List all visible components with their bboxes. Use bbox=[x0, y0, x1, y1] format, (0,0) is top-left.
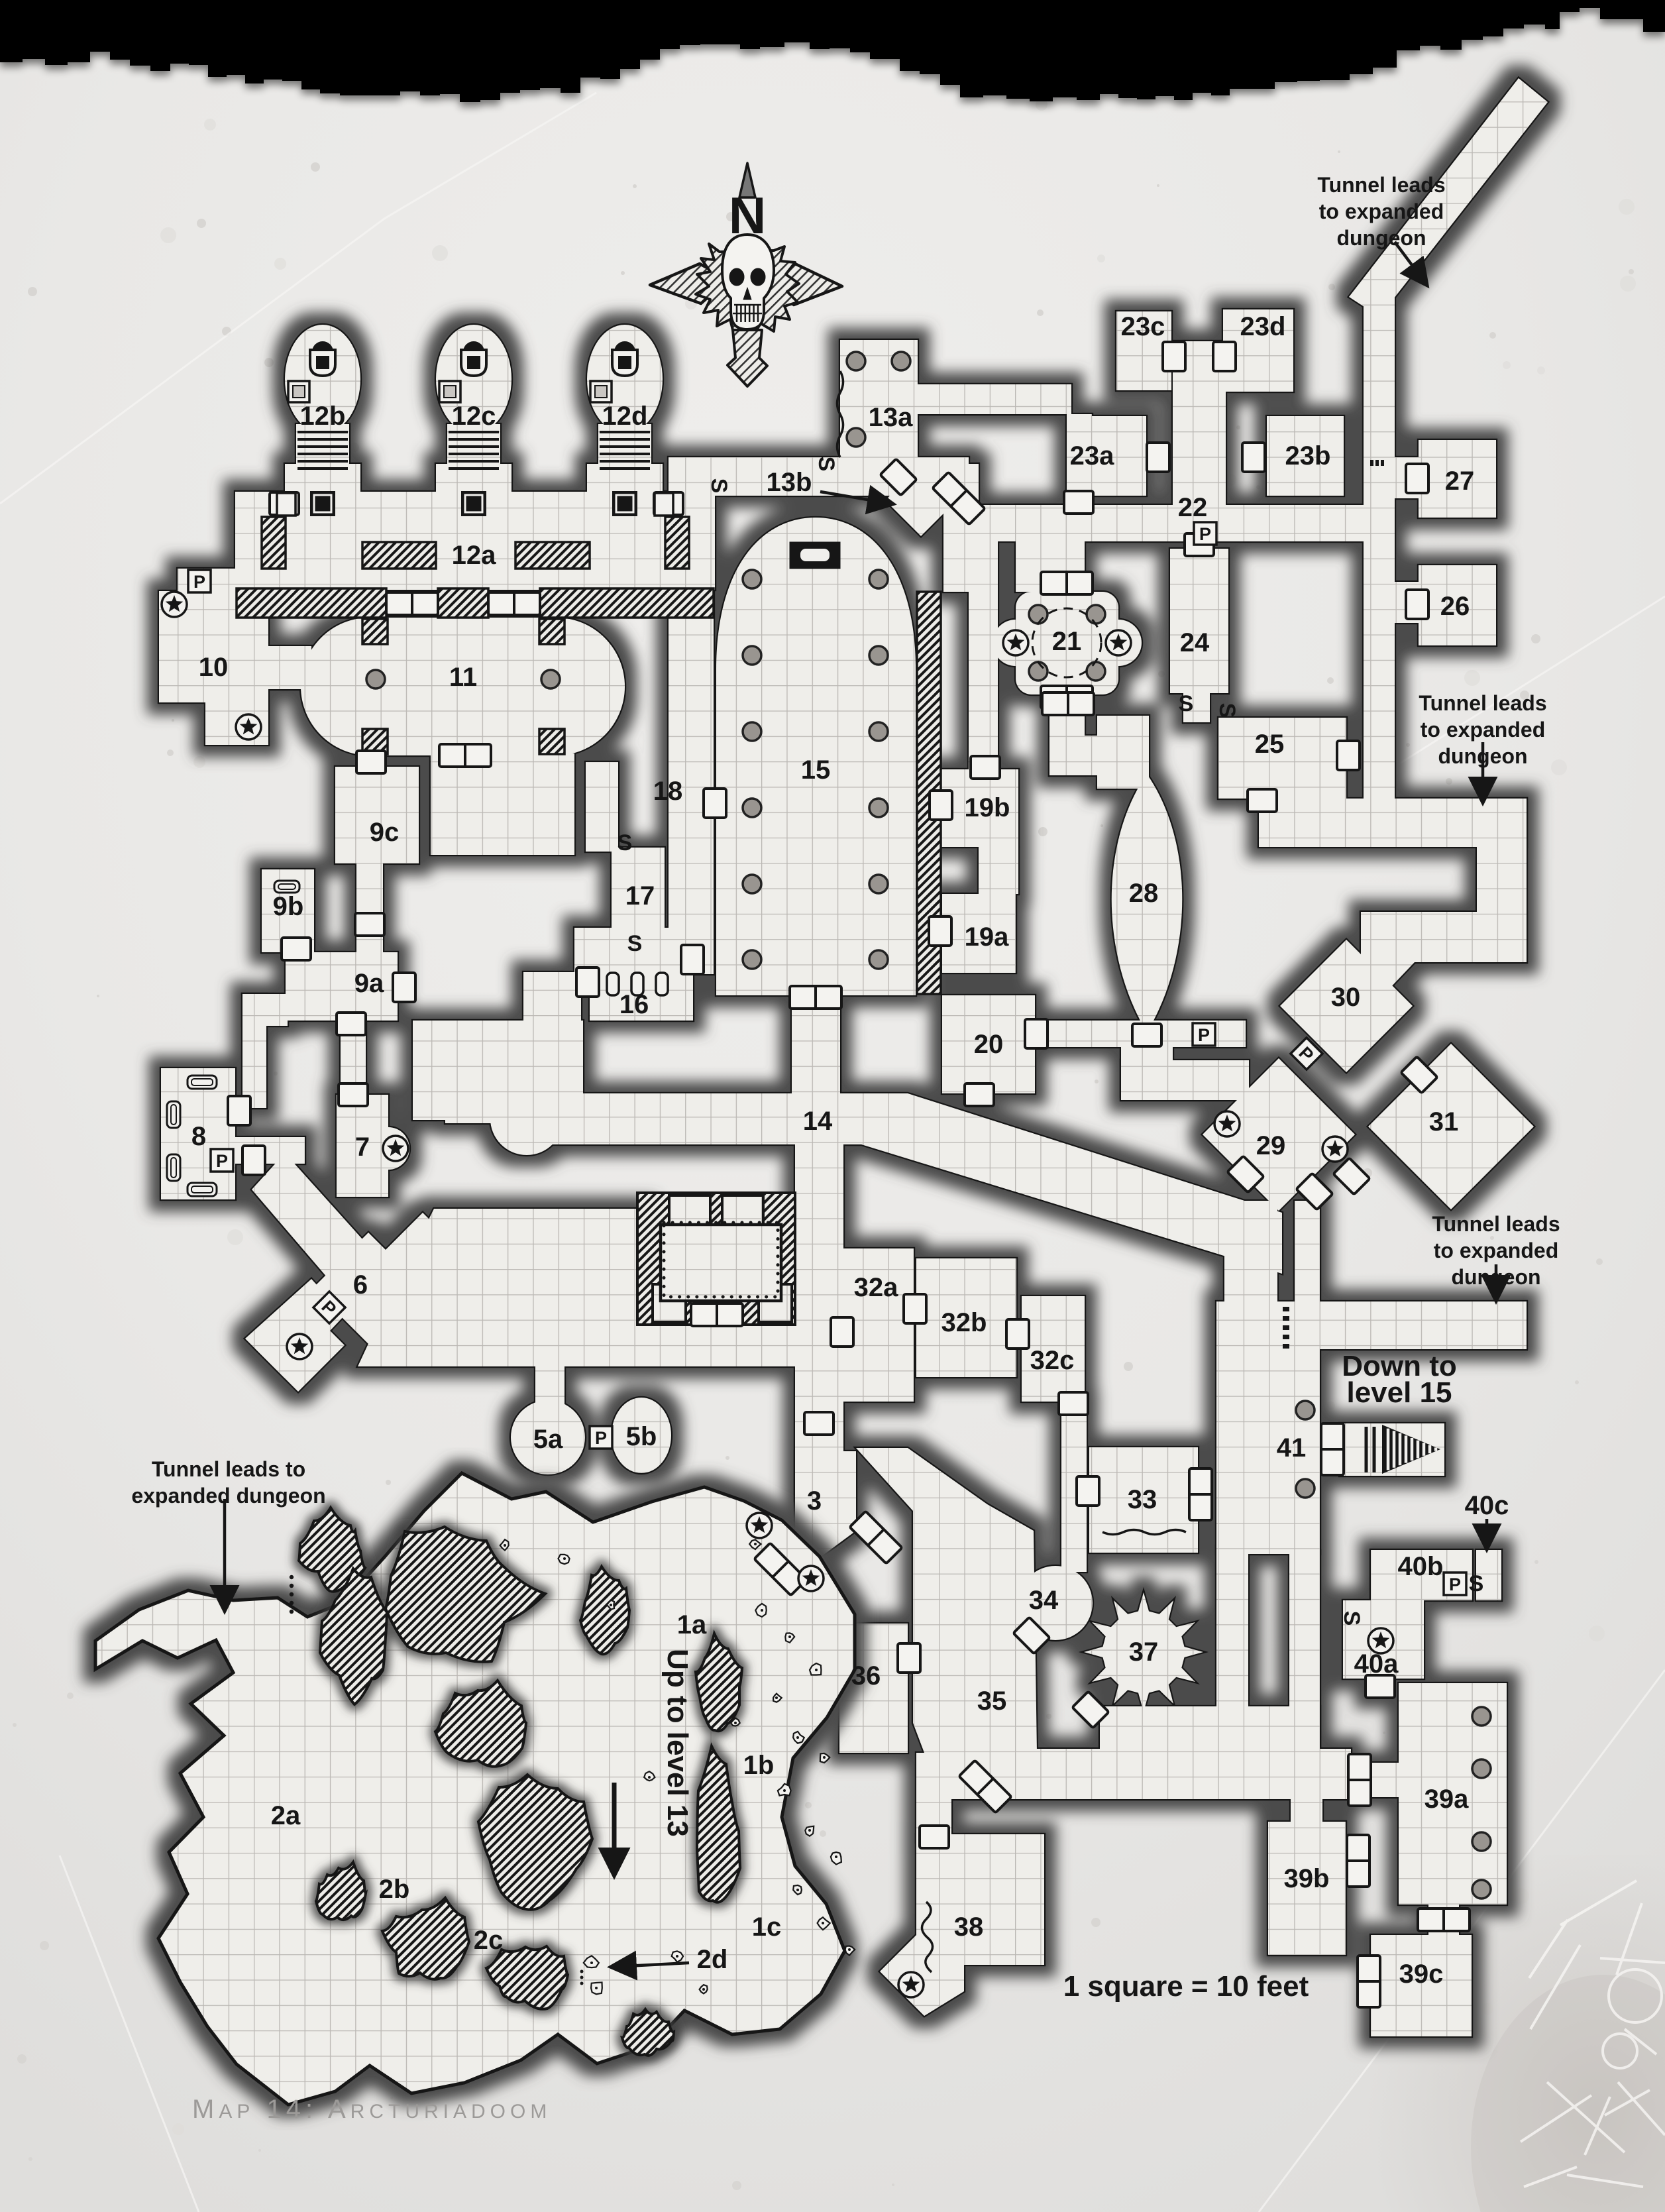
svg-text:35: 35 bbox=[977, 1687, 1007, 1716]
svg-text:32c: 32c bbox=[1030, 1346, 1075, 1375]
svg-text:7: 7 bbox=[355, 1133, 370, 1162]
svg-text:39c: 39c bbox=[1399, 1960, 1444, 1989]
svg-text:6: 6 bbox=[353, 1270, 368, 1300]
svg-text:2a: 2a bbox=[271, 1801, 301, 1830]
svg-text:8: 8 bbox=[191, 1122, 206, 1151]
svg-text:Down tolevel 15: Down tolevel 15 bbox=[1342, 1350, 1457, 1409]
svg-text:9a: 9a bbox=[354, 969, 384, 998]
svg-text:33: 33 bbox=[1128, 1485, 1157, 1514]
svg-text:S: S bbox=[706, 478, 731, 494]
svg-text:29: 29 bbox=[1256, 1131, 1286, 1160]
svg-text:23a: 23a bbox=[1070, 441, 1114, 470]
svg-text:S: S bbox=[618, 830, 633, 856]
svg-text:23d: 23d bbox=[1240, 312, 1286, 341]
svg-text:5b: 5b bbox=[626, 1422, 657, 1451]
svg-text:19b: 19b bbox=[965, 793, 1010, 822]
svg-text:19a: 19a bbox=[965, 922, 1009, 952]
svg-text:31: 31 bbox=[1429, 1107, 1459, 1136]
svg-text:20: 20 bbox=[974, 1030, 1004, 1059]
svg-text:1a: 1a bbox=[677, 1610, 707, 1639]
svg-text:P: P bbox=[1199, 524, 1211, 544]
svg-text:18: 18 bbox=[653, 777, 683, 806]
svg-text:15: 15 bbox=[801, 755, 831, 785]
svg-text:1b: 1b bbox=[743, 1751, 775, 1780]
svg-text:13b: 13b bbox=[767, 468, 812, 497]
svg-text:12a: 12a bbox=[452, 541, 496, 570]
svg-text:30: 30 bbox=[1331, 983, 1361, 1012]
svg-text:2b: 2b bbox=[379, 1875, 410, 1904]
svg-text:2c: 2c bbox=[474, 1926, 504, 1955]
svg-text:39b: 39b bbox=[1284, 1864, 1330, 1893]
svg-text:12b: 12b bbox=[300, 402, 346, 431]
svg-text:40b: 40b bbox=[1398, 1552, 1444, 1581]
svg-text:17: 17 bbox=[625, 881, 655, 911]
svg-text:39a: 39a bbox=[1424, 1785, 1469, 1814]
svg-text:21: 21 bbox=[1052, 627, 1082, 656]
svg-text:P: P bbox=[193, 572, 205, 592]
svg-text:22: 22 bbox=[1178, 493, 1208, 522]
svg-text:14: 14 bbox=[803, 1107, 833, 1136]
svg-text:38: 38 bbox=[954, 1912, 984, 1942]
svg-text:37: 37 bbox=[1129, 1637, 1159, 1667]
svg-text:10: 10 bbox=[199, 653, 229, 682]
svg-text:27: 27 bbox=[1445, 467, 1475, 496]
svg-text:40a: 40a bbox=[1354, 1649, 1399, 1679]
svg-text:1c: 1c bbox=[752, 1912, 782, 1942]
svg-text:S: S bbox=[1339, 1611, 1364, 1626]
svg-text:24: 24 bbox=[1180, 628, 1210, 657]
svg-text:5a: 5a bbox=[533, 1425, 563, 1454]
svg-text:S: S bbox=[1469, 1571, 1484, 1596]
svg-text:23c: 23c bbox=[1121, 312, 1165, 341]
svg-text:36: 36 bbox=[851, 1661, 881, 1690]
svg-text:P: P bbox=[1449, 1575, 1461, 1594]
svg-text:34: 34 bbox=[1029, 1586, 1059, 1615]
svg-text:23b: 23b bbox=[1285, 441, 1331, 470]
svg-text:40c: 40c bbox=[1465, 1491, 1509, 1520]
svg-text:S: S bbox=[814, 457, 839, 472]
svg-text:12c: 12c bbox=[452, 402, 496, 431]
svg-text:3: 3 bbox=[807, 1486, 822, 1516]
svg-text:9c: 9c bbox=[370, 818, 400, 847]
svg-text:32b: 32b bbox=[941, 1308, 987, 1337]
svg-text:P: P bbox=[1198, 1025, 1210, 1045]
svg-text:9b: 9b bbox=[273, 892, 304, 921]
svg-text:28: 28 bbox=[1129, 879, 1159, 908]
svg-text:P: P bbox=[216, 1151, 228, 1171]
svg-text:16: 16 bbox=[619, 990, 649, 1019]
svg-text:S: S bbox=[627, 931, 643, 956]
svg-text:25: 25 bbox=[1255, 730, 1285, 759]
svg-text:12d: 12d bbox=[602, 402, 648, 431]
svg-text:S: S bbox=[1214, 703, 1240, 718]
svg-text:32a: 32a bbox=[854, 1273, 898, 1302]
svg-text:1 square = 10 feet: 1 square = 10 feet bbox=[1063, 1970, 1309, 2003]
svg-text:P: P bbox=[595, 1428, 607, 1448]
svg-text:13a: 13a bbox=[869, 403, 913, 432]
svg-text:Up to level 13: Up to level 13 bbox=[661, 1649, 694, 1837]
svg-text:11: 11 bbox=[449, 663, 477, 692]
svg-text:S: S bbox=[1179, 691, 1194, 716]
svg-text:41: 41 bbox=[1277, 1433, 1307, 1463]
svg-text:2d: 2d bbox=[697, 1945, 728, 1974]
svg-text:26: 26 bbox=[1440, 592, 1470, 621]
